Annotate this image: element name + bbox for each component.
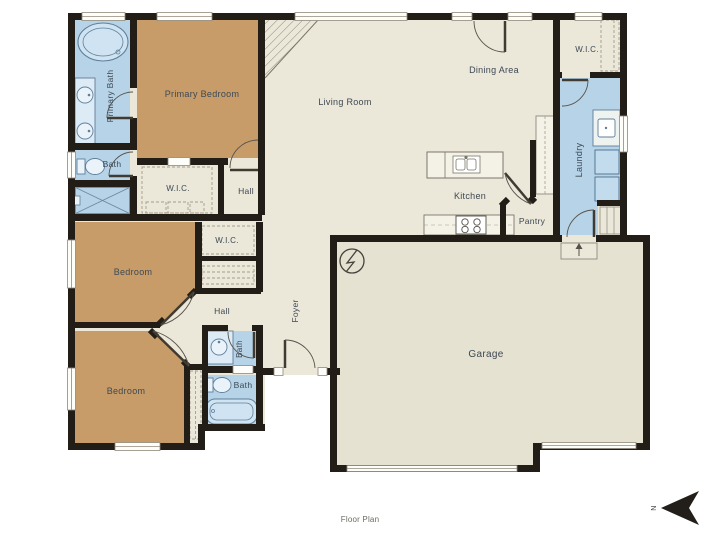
floor-plan-canvas: Primary Bath Bath Primary Bedroom W.I.C.… xyxy=(0,0,720,540)
sink-icon xyxy=(77,123,93,139)
plan-caption: Floor Plan xyxy=(341,515,379,524)
bathtub-icon xyxy=(78,23,128,61)
window xyxy=(508,13,532,21)
room-label-bath-lower: Bath xyxy=(234,380,253,390)
room-label-bath-middle: Bath xyxy=(235,340,244,358)
window xyxy=(68,368,76,410)
garage-door xyxy=(347,466,517,472)
window xyxy=(68,152,76,178)
room-label-hall-upper: Hall xyxy=(238,186,254,196)
garage-door xyxy=(542,443,636,449)
room-label-dining-area: Dining Area xyxy=(469,65,519,75)
north-arrow-icon: N xyxy=(651,491,699,525)
entry-step xyxy=(561,243,597,259)
mud-closet xyxy=(600,207,622,234)
room-label-bath-upper: Bath xyxy=(103,159,122,169)
window xyxy=(295,13,407,21)
room-label-bedroom-lower: Bedroom xyxy=(107,386,146,396)
room-label-primary-bedroom: Primary Bedroom xyxy=(165,89,240,99)
room-label-foyer: Foyer xyxy=(290,299,300,322)
room-label-wic-entry: W.I.C. xyxy=(575,45,599,54)
window xyxy=(157,13,212,21)
room-label-wic-middle: W.I.C. xyxy=(215,236,239,245)
window xyxy=(82,13,125,21)
north-label: N xyxy=(651,505,658,510)
room-label-kitchen: Kitchen xyxy=(454,191,486,201)
sink-faucet-dot xyxy=(218,341,221,344)
window xyxy=(452,13,472,21)
room-label-wic-primary: W.I.C. xyxy=(166,184,190,193)
cased-opening xyxy=(233,366,253,374)
washer-icon xyxy=(595,150,619,174)
window xyxy=(575,13,602,21)
island-sink-icon xyxy=(453,156,480,173)
toilet-tank xyxy=(77,159,85,174)
sink-faucet-dot xyxy=(88,94,91,97)
window xyxy=(68,240,76,288)
dryer-icon xyxy=(595,177,619,201)
sidelite-window xyxy=(274,368,283,376)
room-label-garage: Garage xyxy=(468,349,503,360)
laundry-sink-dot xyxy=(605,127,607,129)
room-label-laundry: Laundry xyxy=(574,142,584,177)
sink-faucet-dot xyxy=(88,130,91,133)
sink-icon xyxy=(77,87,93,103)
sidelite-window xyxy=(318,368,327,376)
floor-plan-page: Primary Bath Bath Primary Bedroom W.I.C.… xyxy=(0,0,720,540)
room-label-primary-bath: Primary Bath xyxy=(105,70,115,123)
room-label-hall-middle: Hall xyxy=(214,306,230,316)
stove-icon xyxy=(456,216,486,234)
toilet-icon xyxy=(213,378,231,393)
window xyxy=(620,116,628,152)
room-label-living-room: Living Room xyxy=(318,97,371,107)
room-label-bedroom-middle: Bedroom xyxy=(114,267,153,277)
cased-opening xyxy=(168,158,190,166)
floor-fills xyxy=(68,13,650,472)
toilet-icon xyxy=(86,159,105,175)
room-label-pantry: Pantry xyxy=(519,216,546,226)
window xyxy=(115,443,160,451)
